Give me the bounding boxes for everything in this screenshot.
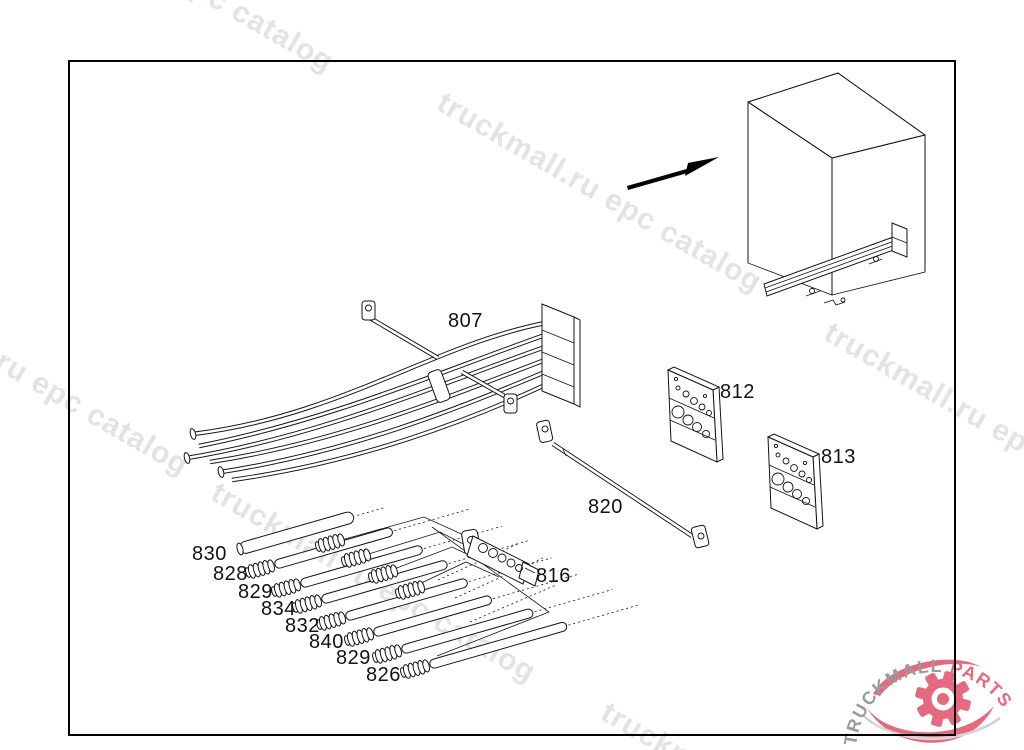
cab-side-face [832, 135, 925, 295]
plate-813-drawing [768, 434, 823, 529]
part-label-813: 813 [821, 446, 856, 469]
screenshot-root: truckmall.ru epc catalog truckmall.ru ep… [0, 0, 1024, 750]
pipe-set-drawing [236, 502, 643, 680]
bracket-816-drawing [461, 529, 539, 586]
parts-diagram-canvas: TRUCKMALL PARTS [0, 0, 1024, 750]
mounting-bracket [362, 301, 438, 358]
direction-arrow-icon [627, 157, 719, 190]
pipe-830 [236, 502, 386, 556]
pipe-assembly-807-drawing [183, 301, 580, 480]
pipe-clamp [427, 369, 451, 404]
part-label-820: 820 [588, 496, 623, 519]
plate-812-drawing [668, 367, 723, 462]
brand-logo: TRUCKMALL PARTS [840, 656, 1016, 750]
part-label-826: 826 [366, 664, 401, 687]
part-label-812: 812 [720, 381, 755, 404]
truck-cab-drawing [748, 73, 925, 305]
cab-installed-pipe-assembly [764, 223, 907, 305]
part-label-807: 807 [448, 310, 483, 333]
part-label-816: 816 [536, 565, 571, 588]
